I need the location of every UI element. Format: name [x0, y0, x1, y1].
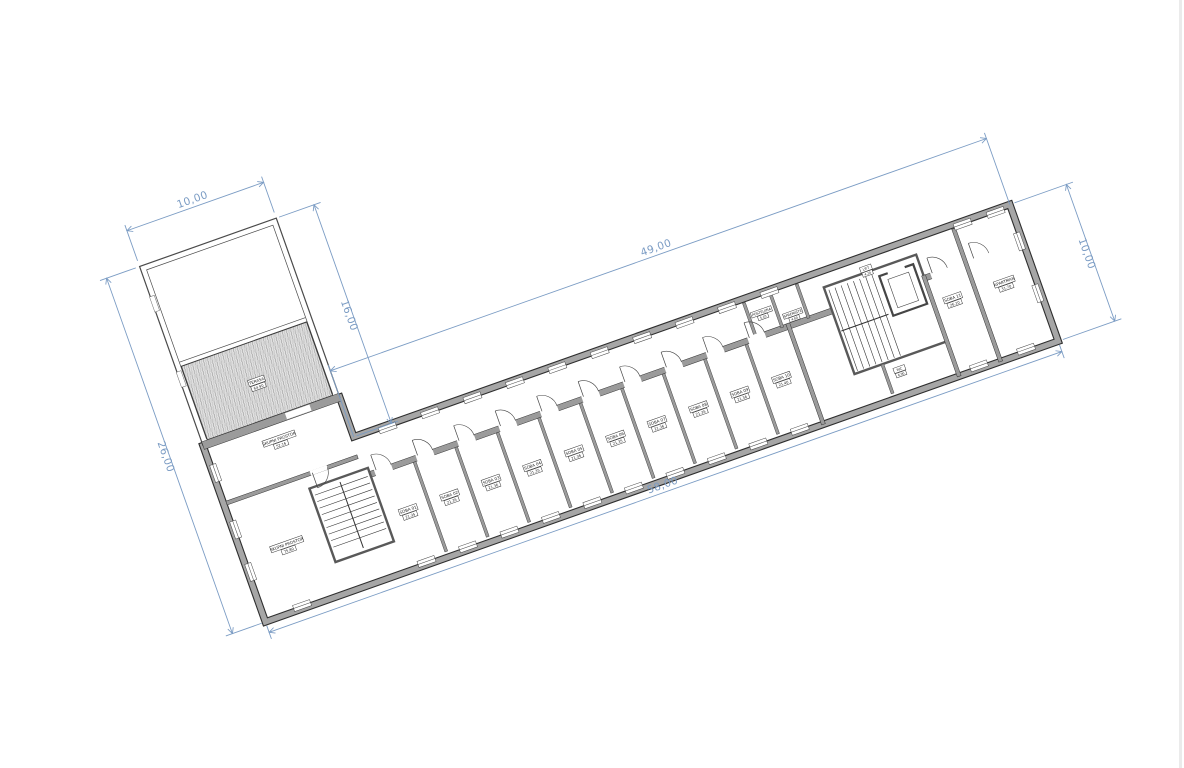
page-edge-line: [1179, 0, 1182, 768]
dimension-label: 10,00: [1076, 237, 1098, 271]
dimension-label: 26,00: [155, 440, 177, 474]
building: [140, 0, 1059, 622]
dimension-label: 16,00: [338, 298, 360, 332]
floor-plan-page: SOBA 0121.35SOBA 0221.35SOBA 0321.36SOBA…: [0, 0, 1184, 768]
floor-plan-drawing: SOBA 0121.35SOBA 0221.35SOBA 0321.36SOBA…: [63, 0, 1163, 673]
floor-plan: SOBA 0121.35SOBA 0221.35SOBA 0321.36SOBA…: [63, 0, 1163, 673]
